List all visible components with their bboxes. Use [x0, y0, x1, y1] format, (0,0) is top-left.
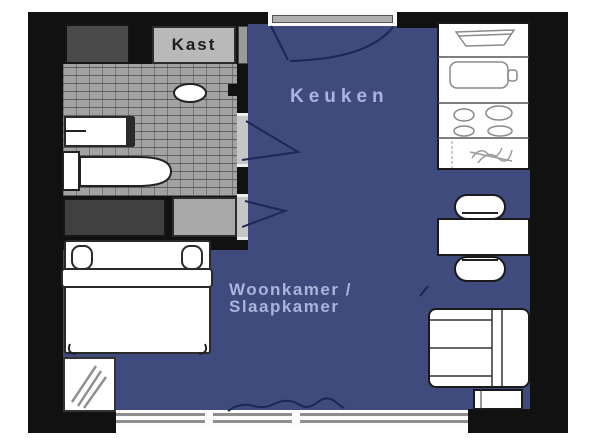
entry-door-slab	[272, 15, 393, 23]
radiator	[63, 357, 116, 412]
wall-left	[28, 12, 63, 433]
side-table	[473, 389, 523, 410]
keuken-label: Keuken	[290, 86, 389, 108]
dining-chair-top	[454, 194, 506, 220]
dining-chair-bottom	[454, 256, 506, 282]
wall-top-left-segment	[28, 12, 268, 24]
wall-bottom-left-corner	[63, 412, 116, 433]
pillow-left	[71, 245, 93, 270]
living-label-line1: Woonkamer /	[229, 281, 352, 298]
cabinet-bottom-light	[172, 197, 237, 237]
wall-notch	[228, 84, 240, 96]
closet-bottom-dark	[63, 198, 166, 237]
bathtub	[64, 116, 134, 147]
wall-right	[530, 12, 568, 433]
bathroom-door-opening-2	[237, 194, 248, 240]
kast-label: Kast	[152, 26, 236, 64]
window-mullion-gap	[292, 412, 300, 425]
bathroom-door-opening-1	[237, 113, 248, 167]
pillow-right	[181, 245, 203, 270]
dining-table	[437, 218, 530, 256]
door-jamb-strip	[238, 26, 248, 64]
bathtub-end-panel	[126, 117, 135, 146]
kitchen-counter	[437, 22, 530, 170]
closet-top-left	[65, 24, 130, 64]
window-mullion-gap	[205, 412, 213, 425]
living-label-line2: Slaapkamer	[229, 298, 339, 315]
sofa	[428, 308, 530, 388]
bed-sheet-fold	[61, 268, 213, 288]
wall-bottom-right-corner	[468, 409, 530, 433]
floorplan-canvas: Kast Keuken Woonkamer / Slaapkamer	[0, 0, 600, 448]
